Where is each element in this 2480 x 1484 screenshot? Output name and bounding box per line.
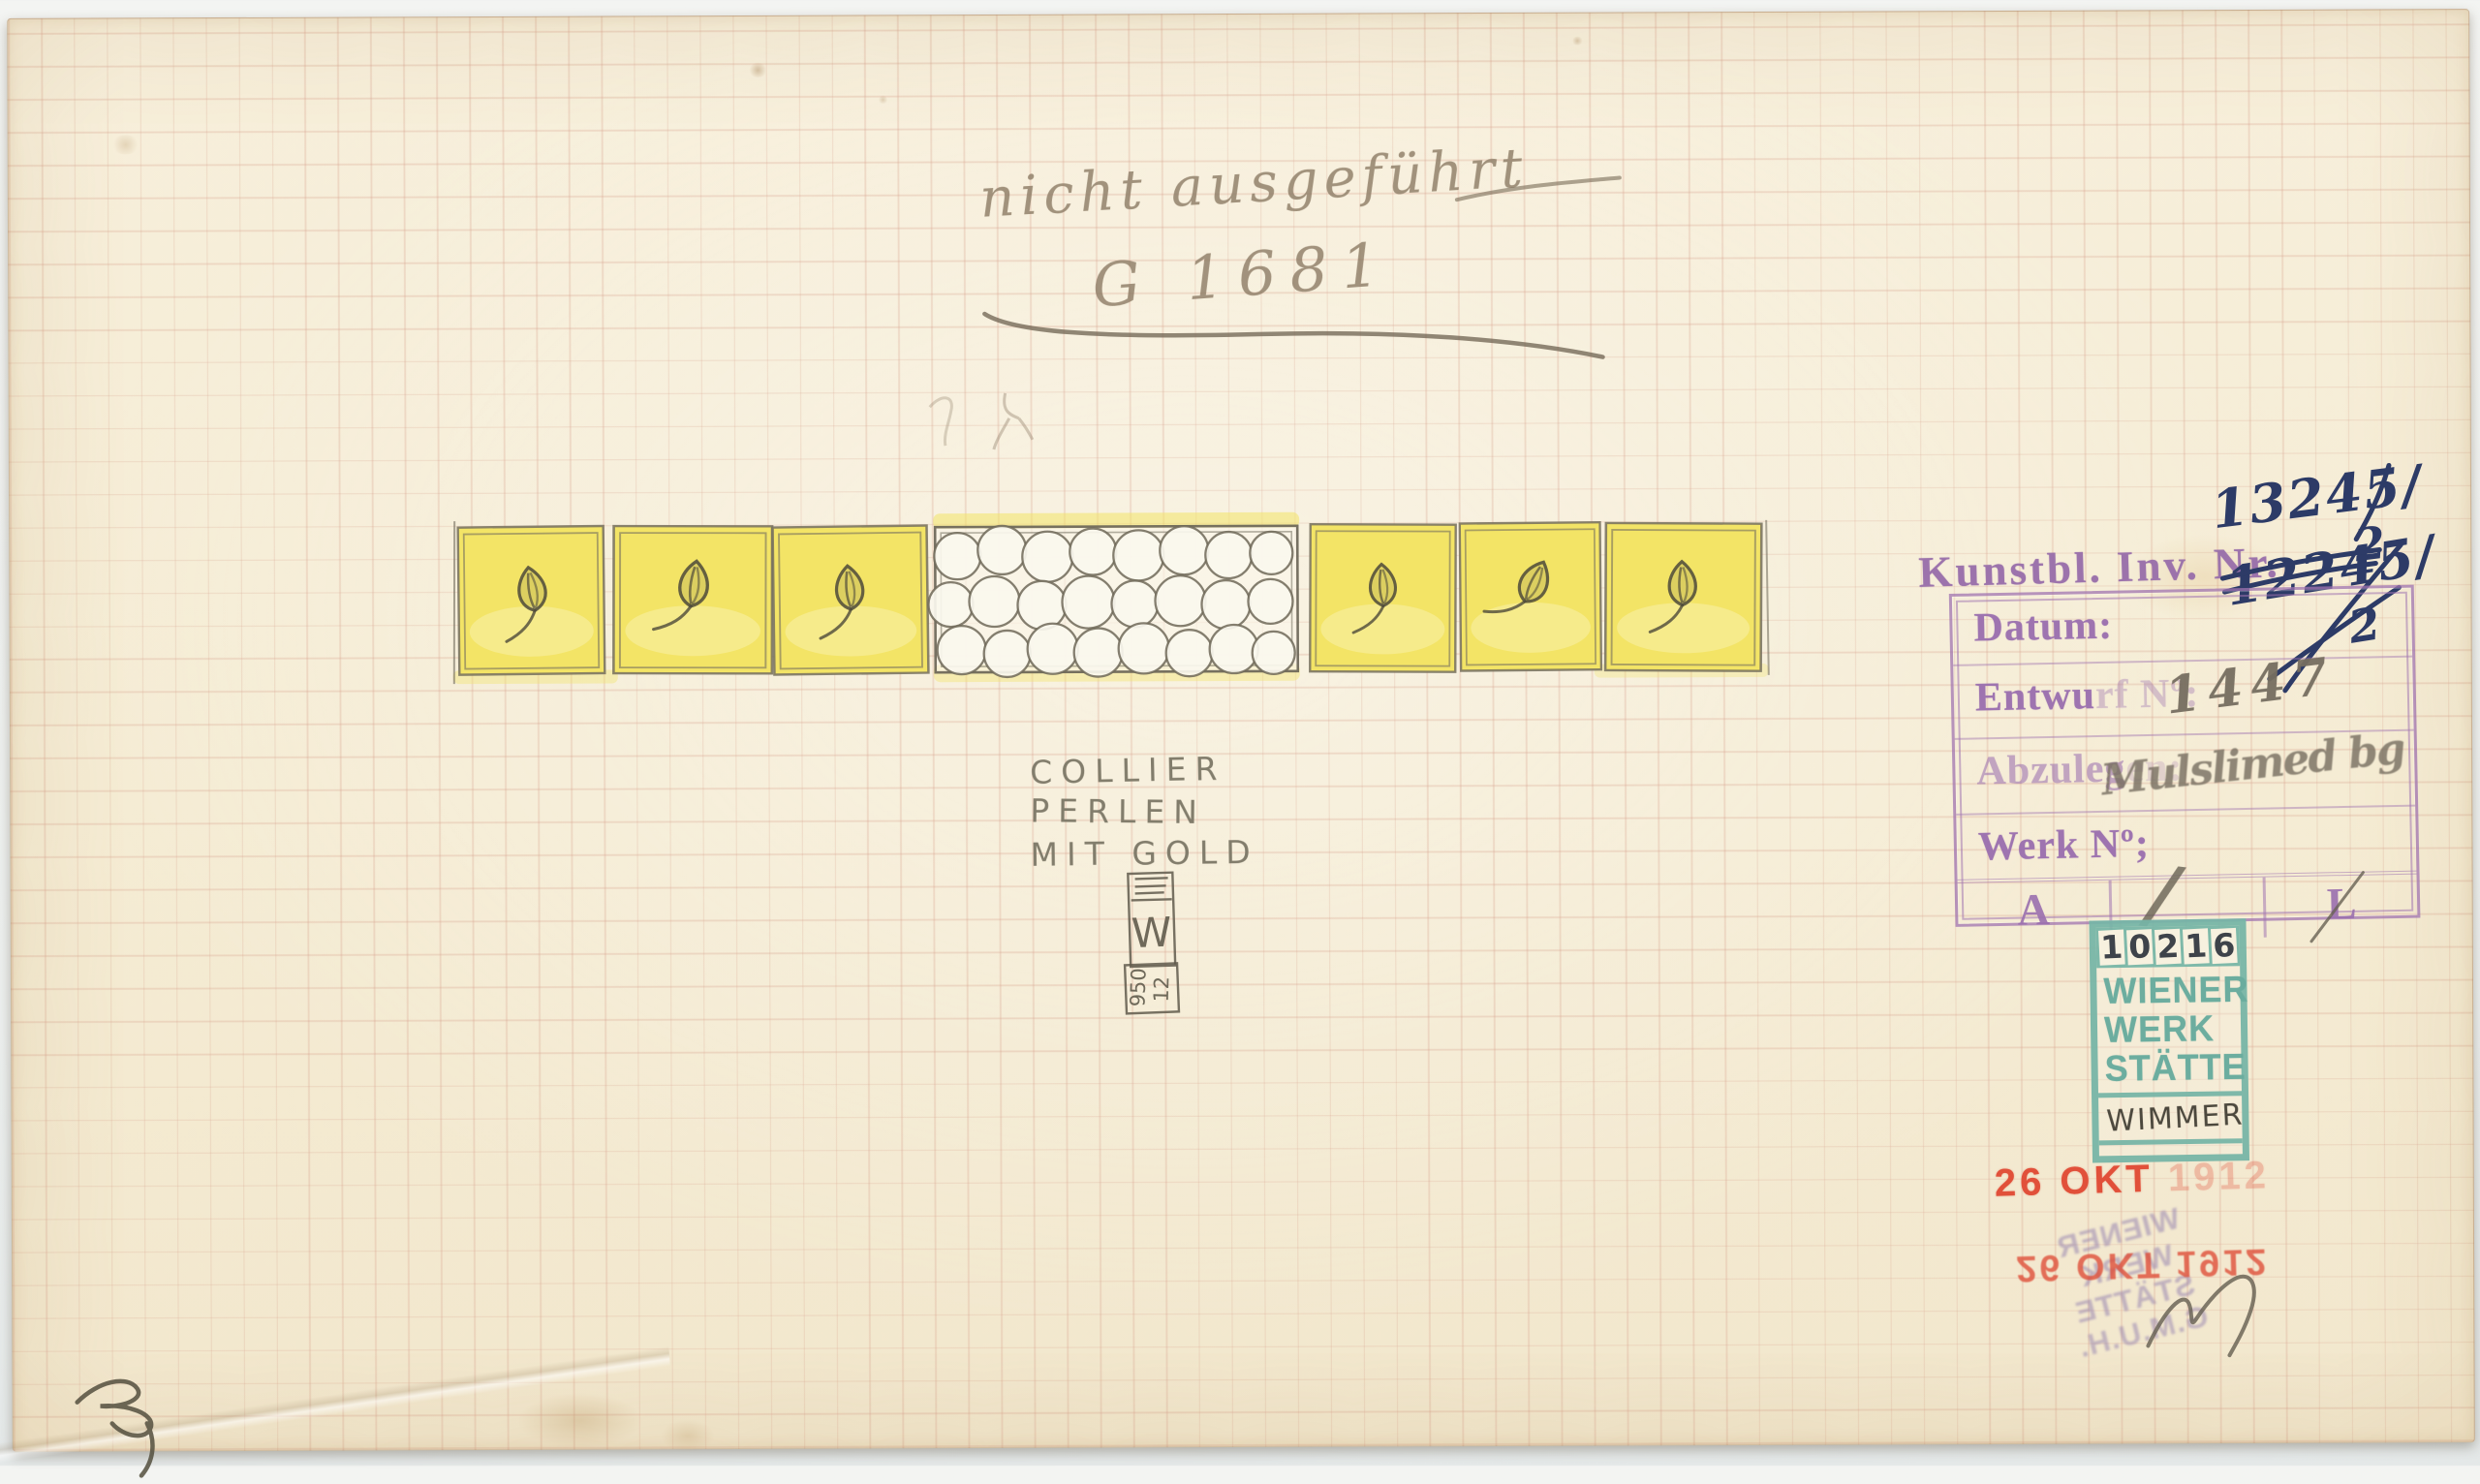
title-block: COLLIER PERLEN MIT GOLD (1030, 749, 1259, 875)
wimmer-signature: WIMMER (2106, 1098, 2246, 1139)
ww-word-staette: STÄTTE (2097, 1046, 2242, 1089)
pencil-mark-bottom-left (64, 1367, 190, 1483)
row-datum: Datum: (1952, 588, 2412, 666)
ww-digit: 1 (2098, 930, 2125, 966)
archive-stamp-box: Datum: Entwurf Nº: 1447 Abzulegen: Mulsl… (1949, 585, 2421, 927)
datum-label: Datum: (1973, 603, 2114, 651)
row-werk: Werk Nº; (1956, 807, 2416, 880)
erased-pencil-marks (901, 386, 1075, 474)
title-line-collier: COLLIER (1030, 747, 1259, 793)
abzulegen-note-handwritten: Mulslimed bg (2098, 724, 2405, 805)
date-stamp-front: 26 OKT 1912 (1994, 1154, 2270, 1206)
pencil-underline-strokes (973, 158, 1632, 364)
title-line-perlen: PERLEN (1030, 789, 1259, 833)
svg-text:W: W (1131, 909, 1172, 958)
date-stamp-faint-year: 1912 (2167, 1154, 2270, 1199)
ww-number-cells: 1 0 2 1 6 (2096, 925, 2241, 968)
grade-cell-a: A (1958, 881, 2110, 943)
foxing-spot (1571, 37, 1583, 46)
ww-digit: 0 (2126, 929, 2154, 965)
ww-designer-box: WIMMER (2098, 1091, 2243, 1140)
pencil-slash-mark: / (2146, 864, 2181, 923)
svg-text:12: 12 (1150, 975, 1174, 1002)
ww-word-werk: WERK (2097, 1007, 2242, 1050)
ww-digit: 6 (2211, 928, 2238, 964)
row-entwurf: Entwurf Nº: 1447 (1953, 658, 2413, 740)
pearl-panel (928, 525, 1298, 677)
necklace-band-drawing (450, 509, 1774, 693)
foxing-spot (878, 95, 887, 104)
foxing-spot (111, 135, 140, 154)
foxing-spot (748, 63, 767, 77)
ww-digit: 2 (2154, 929, 2182, 965)
grade-cell-l: L (2263, 875, 2418, 938)
wiener-werkstaette-stamp: 1 0 2 1 6 WIENER WERK STÄTTE WIMMER (2089, 918, 2249, 1162)
ww-word-wiener: WIENER (2096, 969, 2241, 1011)
werk-label: Werk Nº; (1977, 821, 2150, 869)
pencil-scribble-signature (2140, 1270, 2285, 1368)
svg-text:950: 950 (1126, 968, 1150, 1007)
monogram-sketch: W 950 12 (1122, 867, 1191, 1017)
ww-digit: 1 (2183, 928, 2210, 964)
graph-paper-sheet: nicht ausgeführt G 1681 (7, 9, 2475, 1452)
row-abzulegen: Abzulegen: Mulslimed bg (1955, 731, 2415, 816)
